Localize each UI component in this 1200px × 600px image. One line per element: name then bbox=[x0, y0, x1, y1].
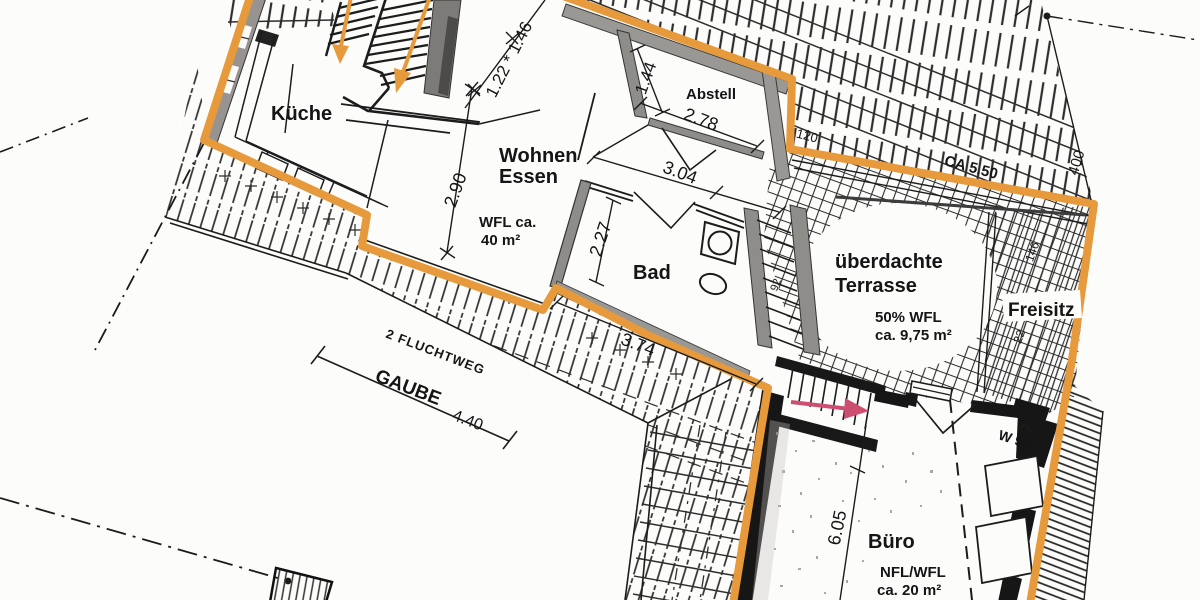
svg-text:Essen: Essen bbox=[499, 166, 558, 188]
svg-text:Küche: Küche bbox=[271, 103, 332, 125]
svg-text:ca. 20 m²: ca. 20 m² bbox=[877, 582, 941, 599]
svg-text:Freisitz: Freisitz bbox=[1008, 300, 1075, 321]
svg-text:Abstell: Abstell bbox=[686, 86, 736, 103]
svg-text:überdachte: überdachte bbox=[835, 251, 943, 273]
svg-text:Büro: Büro bbox=[868, 531, 915, 553]
svg-text:50% WFL: 50% WFL bbox=[875, 309, 942, 326]
svg-text:Bad: Bad bbox=[633, 262, 671, 284]
svg-text:ca. 9,75 m²: ca. 9,75 m² bbox=[875, 327, 952, 344]
svg-text:40 m²: 40 m² bbox=[481, 232, 520, 249]
svg-text:Wohnen: Wohnen bbox=[499, 145, 578, 167]
svg-text:WFL ca.: WFL ca. bbox=[479, 214, 536, 231]
svg-text:NFL/WFL: NFL/WFL bbox=[880, 564, 946, 581]
svg-text:Terrasse: Terrasse bbox=[835, 275, 917, 297]
